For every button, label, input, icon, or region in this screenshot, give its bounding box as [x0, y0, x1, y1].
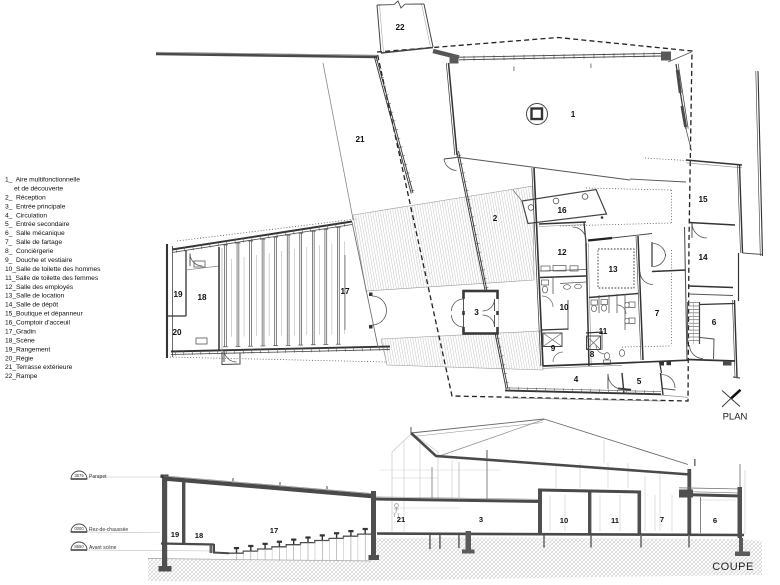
svg-text:10_Salle de toilette des homme: 10_Salle de toilette des hommes: [5, 266, 101, 273]
svg-text:10: 10: [560, 516, 568, 525]
svg-text:PLAN: PLAN: [723, 412, 748, 423]
svg-text:3: 3: [479, 515, 483, 524]
svg-text:3_ Entrée principale: 3_ Entrée principale: [5, 203, 66, 210]
svg-text:11_Salle de toilette des femme: 11_Salle de toilette des femmes: [5, 275, 99, 282]
svg-text:6: 6: [712, 318, 717, 327]
svg-text:21_Terrasse extérieure: 21_Terrasse extérieure: [5, 364, 73, 371]
svg-text:1: 1: [571, 110, 576, 119]
svg-text:18_Scène: 18_Scène: [5, 337, 35, 344]
svg-text:COUPE: COUPE: [712, 561, 754, 573]
svg-text:21: 21: [355, 135, 365, 144]
svg-text:10: 10: [559, 303, 569, 312]
svg-text:1_ Aire multifonctionnelle: 1_ Aire multifonctionnelle: [5, 177, 80, 184]
svg-text:5_ Entrée secondaire: 5_ Entrée secondaire: [5, 221, 70, 228]
svg-text:16_Comptoir d'acceuil: 16_Comptoir d'acceuil: [5, 320, 70, 327]
svg-text:3675: 3675: [74, 473, 84, 478]
svg-text:21: 21: [397, 515, 406, 524]
svg-text:9: 9: [551, 344, 556, 353]
svg-text:0000: 0000: [74, 526, 84, 531]
svg-text:13: 13: [608, 265, 618, 274]
svg-text:8_ Concièrgerie: 8_ Concièrgerie: [5, 248, 54, 255]
svg-text:6: 6: [713, 516, 717, 525]
svg-text:19: 19: [173, 290, 183, 299]
svg-text:12: 12: [557, 248, 567, 257]
svg-text:12_Salle des employés: 12_Salle des employés: [5, 284, 74, 291]
svg-text:2_ Réception: 2_ Réception: [5, 194, 46, 201]
svg-text:15: 15: [698, 195, 708, 204]
svg-text:Rez-de-chaussée: Rez-de-chaussée: [89, 527, 128, 533]
svg-text:14: 14: [698, 253, 708, 262]
svg-text:20: 20: [172, 328, 182, 337]
svg-text:Parapet: Parapet: [89, 474, 107, 480]
svg-text:6_ Salle mécanique: 6_ Salle mécanique: [5, 230, 65, 237]
svg-text:9_ Douche et vestiaire: 9_ Douche et vestiaire: [5, 257, 73, 264]
svg-text:8: 8: [590, 350, 595, 359]
svg-text:7: 7: [655, 309, 660, 318]
svg-text:4_ Circulation: 4_ Circulation: [5, 212, 47, 219]
svg-text:4: 4: [574, 375, 579, 384]
svg-text:15_Boutique et dépanneur: 15_Boutique et dépanneur: [5, 311, 83, 318]
svg-text:14_Salle de dépôt: 14_Salle de dépôt: [5, 302, 58, 309]
svg-text:16: 16: [557, 206, 567, 215]
svg-text:19_Rangement: 19_Rangement: [5, 346, 50, 353]
svg-text:Avant scène: Avant scène: [89, 545, 117, 551]
svg-text:7_ Salle de fartage: 7_ Salle de fartage: [5, 239, 62, 246]
svg-text:et de découverte: et de découverte: [5, 185, 63, 192]
svg-text:17: 17: [340, 287, 350, 296]
svg-text:22: 22: [395, 23, 405, 32]
svg-text:8650: 8650: [74, 544, 84, 549]
svg-text:11: 11: [611, 516, 620, 525]
svg-text:20_Régie: 20_Régie: [5, 355, 34, 362]
svg-text:18: 18: [197, 293, 207, 302]
svg-text:17: 17: [270, 526, 278, 535]
svg-text:3: 3: [474, 308, 479, 317]
svg-text:2: 2: [493, 214, 498, 223]
svg-text:11: 11: [599, 327, 608, 336]
svg-text:17_Gradin: 17_Gradin: [5, 329, 36, 336]
svg-text:5: 5: [637, 377, 642, 386]
svg-text:13_Salle de location: 13_Salle de location: [5, 293, 65, 300]
svg-text:7: 7: [660, 515, 664, 524]
svg-text:19: 19: [171, 530, 179, 539]
svg-text:22_Rampe: 22_Rampe: [5, 373, 38, 380]
svg-text:18: 18: [195, 531, 203, 540]
